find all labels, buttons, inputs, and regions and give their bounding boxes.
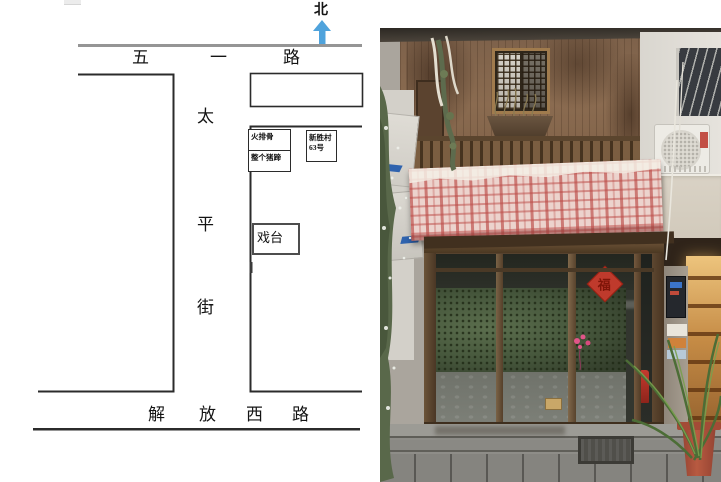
bottom-road-char-2: 放 — [199, 406, 216, 423]
stall-box-top: 火排骨 — [248, 129, 291, 151]
stall-box-bottom: 整个猪蹄 — [248, 150, 291, 172]
top-road-char-2: 一 — [210, 49, 227, 66]
left-block-outline — [38, 75, 174, 392]
pavement — [380, 454, 721, 482]
door-mullion-2 — [568, 254, 576, 422]
bottom-road-line — [33, 428, 360, 431]
stall-box-top-label: 火排骨 — [249, 130, 290, 142]
storefront-photo: 福 — [380, 28, 721, 482]
ac-logo-upper — [382, 164, 403, 173]
top-road-line — [78, 44, 362, 47]
meter-label — [670, 291, 679, 295]
top-road-char-3: 路 — [283, 49, 300, 66]
notice-white — [667, 324, 687, 336]
street-char-2: 平 — [197, 216, 214, 233]
stall-box-bottom-label: 整个猪蹄 — [249, 151, 290, 163]
bottom-road-char-1: 解 — [148, 406, 165, 423]
meter-dial — [670, 282, 682, 288]
location-map: 北 五 一 路 太 平 街 解 放 西 路 火排骨 整个猪蹄 新胜村 63号 戏… — [0, 0, 380, 482]
dirt-streak — [435, 426, 565, 435]
striped-awning — [409, 159, 664, 241]
door-jamb-left — [424, 242, 436, 434]
ac-bottom-slats — [659, 166, 707, 172]
railing-top-rail — [400, 136, 652, 141]
street-char-1: 太 — [197, 108, 214, 125]
north-arrow-shaft — [319, 30, 326, 45]
glass-foliage — [436, 288, 626, 376]
ac-fan-grille — [661, 130, 701, 170]
address-line-1: 新胜村 — [307, 131, 336, 143]
street-char-3: 街 — [197, 299, 214, 316]
address-box: 新胜村 63号 — [306, 130, 337, 162]
bottom-road-char-4: 路 — [292, 406, 309, 423]
door-mullion-1 — [496, 254, 503, 422]
door-transom-bar — [436, 268, 654, 272]
bottom-road-char-3: 西 — [246, 406, 263, 423]
street-tick — [250, 262, 253, 273]
lattice-window — [492, 48, 550, 114]
glass-stone-wall — [436, 372, 626, 422]
north-label: 北 — [314, 4, 328, 18]
address-line-2: 63号 — [307, 143, 336, 153]
step-lower — [380, 440, 721, 452]
plant-pot-rim — [677, 422, 721, 430]
posted-notices — [667, 324, 688, 364]
window-pane-right — [522, 53, 545, 109]
door-mullion-3 — [634, 254, 641, 422]
ground — [380, 424, 721, 482]
right-window-grille — [676, 48, 721, 116]
right-ac-unit — [654, 124, 710, 174]
ac-brand-label — [700, 132, 708, 148]
stage-box-label: 戏台 — [254, 225, 298, 246]
door-bottom-sign — [545, 398, 562, 410]
right-top-box — [251, 74, 363, 107]
shop-interior — [686, 256, 721, 444]
storefront-glass: 福 — [436, 254, 654, 422]
window-pane-left — [497, 53, 520, 109]
top-road-char-1: 五 — [132, 49, 149, 66]
flower-box — [484, 116, 556, 138]
carved-stone-slab — [578, 436, 634, 464]
stage-box: 戏台 — [252, 223, 300, 255]
notice-blue — [667, 350, 686, 359]
screenshot-root: 北 五 一 路 太 平 街 解 放 西 路 火排骨 整个猪蹄 新胜村 63号 戏… — [0, 0, 721, 482]
north-arrow-head — [313, 20, 331, 31]
electric-meter-box — [666, 276, 686, 318]
notice-orange — [668, 338, 686, 348]
map-lines — [0, 0, 380, 482]
fu-character: 福 — [598, 274, 611, 293]
